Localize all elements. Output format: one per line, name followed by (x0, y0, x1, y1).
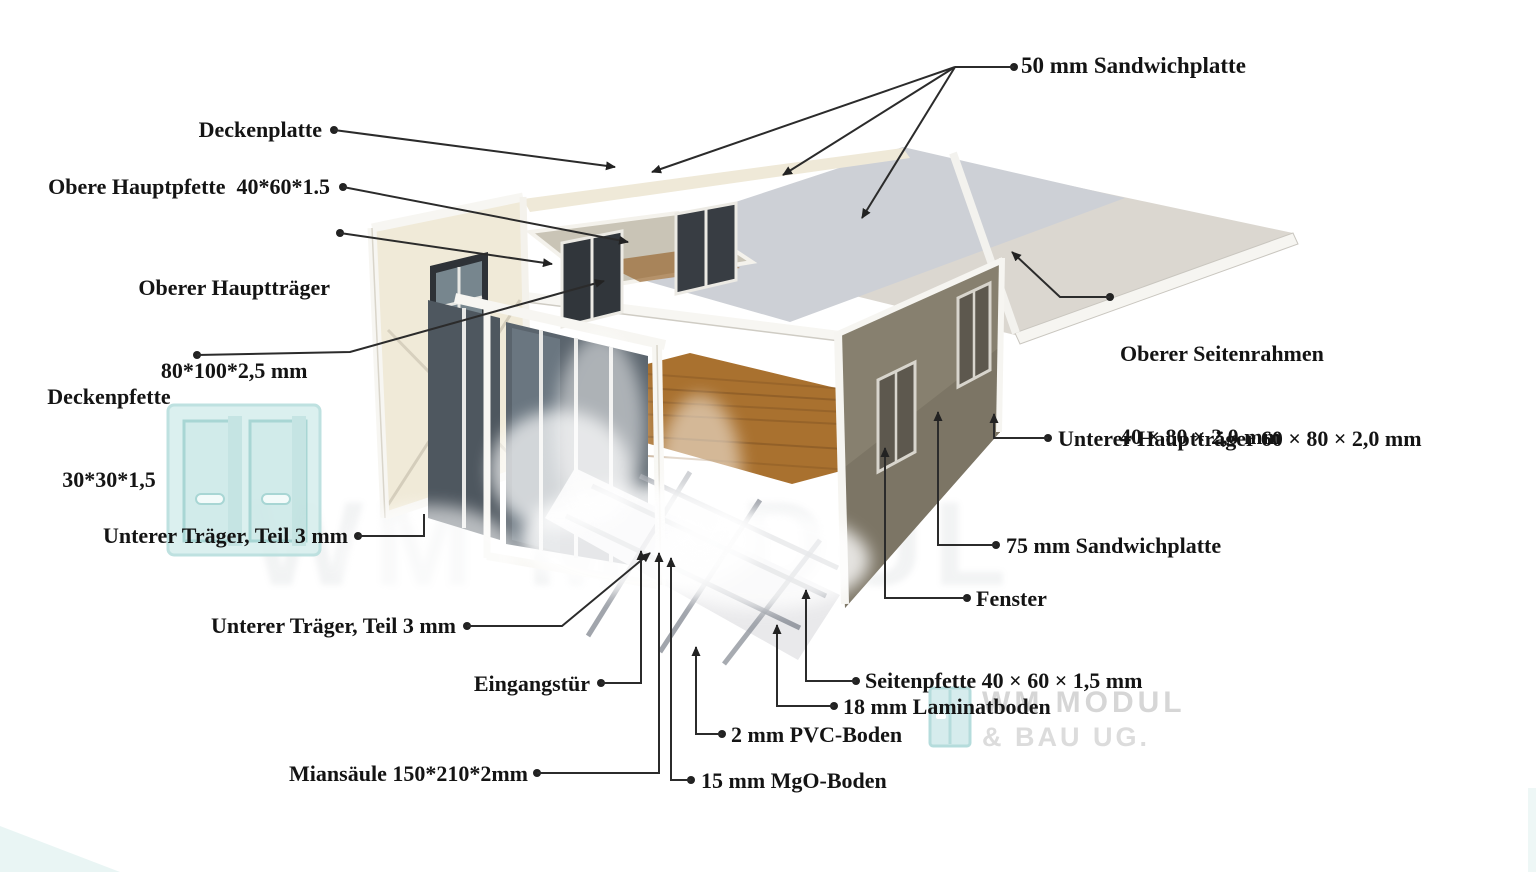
label-mgo-boden: 15 mm MgO-Boden (701, 767, 887, 795)
label-sandwichplatte-50: 50 mm Sandwichplatte (1021, 52, 1246, 81)
label-eingangstuer: Eingangstür (474, 670, 590, 698)
brand-text-line2: & BAU UG. (982, 722, 1150, 752)
label-deckenpfette-line1: Deckenpfette (28, 383, 190, 411)
right-wall-window-2 (958, 283, 990, 387)
label-sandwichplatte-75: 75 mm Sandwichplatte (1006, 532, 1221, 560)
label-unterer-haupttraeger: Unterer Hauptträger 60 × 80 × 2,0 mm (1058, 425, 1422, 453)
right-wall-window-1 (878, 362, 915, 472)
label-laminatboden: 18 mm Laminatboden (843, 693, 1051, 721)
label-deckenplatte: Deckenplatte (199, 116, 322, 144)
label-unterer-traeger-2: Unterer Träger, Teil 3 mm (211, 612, 456, 640)
label-oberer-haupttraeger-line1: Oberer Hauptträger (138, 274, 330, 302)
interior-window-b (676, 203, 736, 294)
corner-tint-right (1528, 788, 1536, 872)
label-fenster: Fenster (976, 585, 1047, 613)
label-oberer-seitenrahmen: Oberer Seitenrahmen 40 × 80 × 2,0 mm (1120, 285, 1324, 505)
label-pvc-boden: 2 mm PVC-Boden (731, 721, 902, 749)
diagram-canvas: WM MODUL (0, 0, 1536, 872)
corner-tint-bottom-left (0, 826, 120, 872)
label-miansaeule: Miansäule 150*210*2mm (289, 760, 528, 788)
label-deckenpfette: Deckenpfette 30*30*1,5 (28, 328, 190, 548)
label-unterer-traeger-1: Unterer Träger, Teil 3 mm (103, 522, 348, 550)
label-deckenpfette-line2: 30*30*1,5 (28, 466, 190, 494)
label-oberer-seitenrahmen-line1: Oberer Seitenrahmen (1120, 340, 1324, 368)
label-seitenpfette: Seitenpfette 40 × 60 × 1,5 mm (865, 667, 1142, 695)
label-obere-hauptpfette: Obere Hauptpfette 40*60*1.5 (48, 173, 330, 201)
interior-window-a (562, 231, 622, 327)
